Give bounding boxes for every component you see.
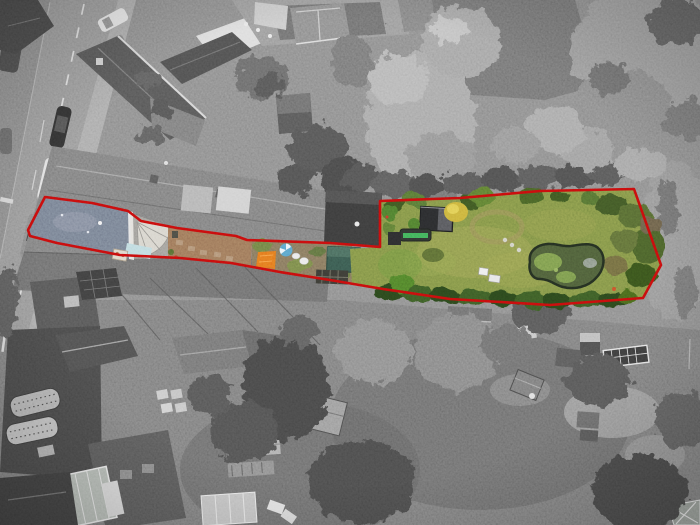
aerial-photo — [0, 0, 700, 525]
aerial-photo-stage — [0, 0, 700, 525]
vignette — [0, 0, 700, 525]
